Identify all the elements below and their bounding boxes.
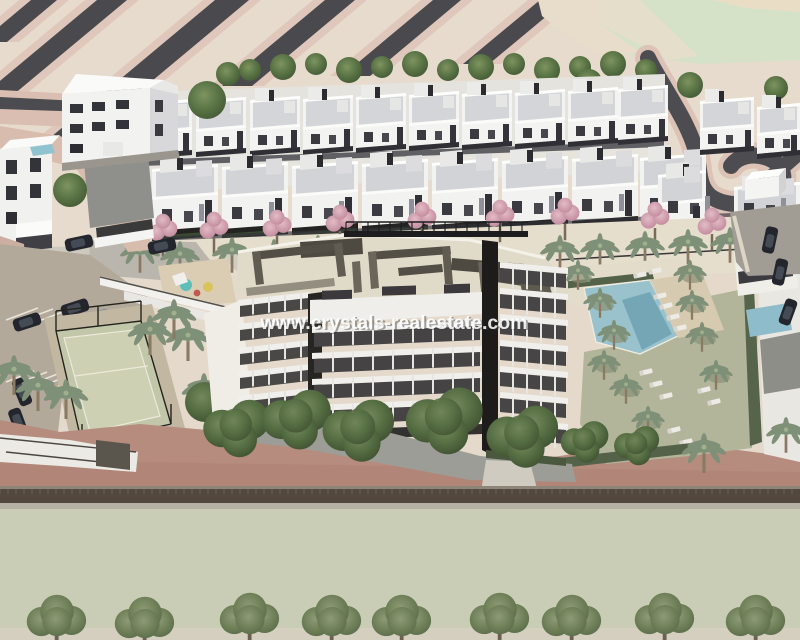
svg-text:www.crystals-realestate.com: www.crystals-realestate.com — [260, 312, 528, 334]
